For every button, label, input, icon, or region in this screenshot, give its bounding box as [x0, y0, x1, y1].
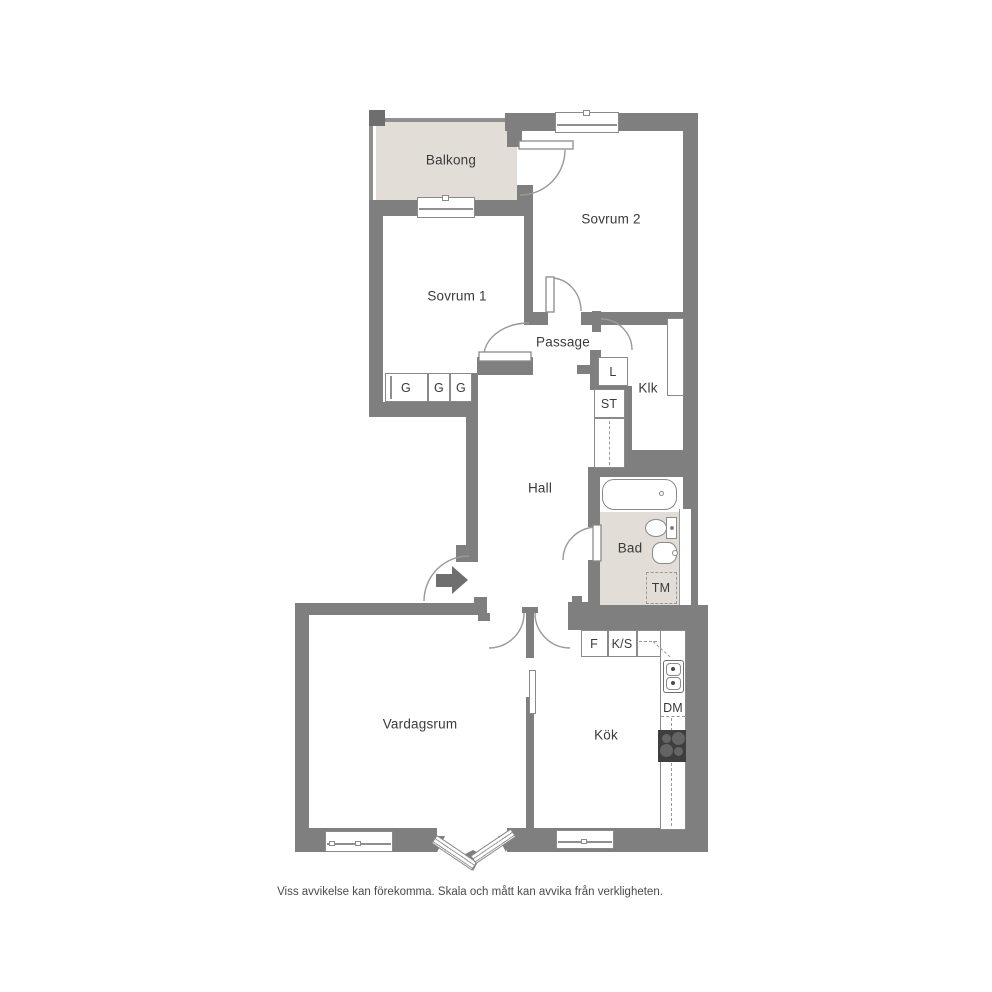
window-sovrum1-mullion — [419, 208, 473, 210]
stove-burner — [662, 734, 671, 743]
balcony-railing-top — [369, 118, 511, 122]
wall-bedroom-divider — [524, 185, 533, 325]
window-tick — [581, 839, 587, 844]
wall-st-klk-divider — [625, 386, 632, 457]
wall-livingroom-top — [295, 603, 487, 615]
wall-step — [474, 597, 487, 603]
wall-klk-left — [592, 311, 601, 332]
bathtub-drain — [659, 491, 664, 496]
room-label-sovrum2: Sovrum 2 — [581, 212, 640, 227]
wall-passage-south — [477, 357, 533, 375]
wall-kitchen-top-left — [568, 602, 600, 630]
door-swing-arc-bad — [563, 527, 597, 560]
window-sovrum2-mullion — [557, 124, 617, 126]
stove-burner — [672, 732, 685, 745]
corner-counter — [637, 630, 661, 657]
label-washing-machine: TM — [652, 581, 670, 595]
entry-arrow-head — [452, 566, 468, 594]
wall-right-kitchen — [686, 615, 708, 852]
door-leaf-sovrum2 — [546, 277, 554, 312]
label-closet-l: L — [609, 365, 616, 379]
wall-step — [478, 613, 490, 621]
door-swing-arc-sovrum2 — [551, 278, 581, 311]
wall-left-livingroom — [295, 603, 309, 852]
sink-drain-dot — [671, 681, 675, 685]
label-fridge: K/S — [612, 637, 633, 651]
door-swing-arc-kitchen — [535, 613, 570, 648]
label-freezer: F — [590, 637, 598, 651]
bathtub — [602, 479, 677, 510]
room-label-sovrum1: Sovrum 1 — [427, 289, 486, 304]
balcony-railing-left — [369, 118, 373, 203]
klk-shelf — [667, 318, 684, 396]
wall-kitchen-top — [600, 605, 708, 630]
toilet-bowl — [645, 519, 667, 537]
wall-entry-stub — [456, 545, 478, 562]
wall-sovrum2-bottom-stub — [533, 312, 548, 325]
stove-burner — [674, 747, 683, 756]
wall-balconydoor-top — [507, 131, 522, 147]
label-wardrobe-g3: G — [456, 381, 466, 395]
room-label-bad: Bad — [618, 541, 643, 556]
wall-bath-left-upper — [588, 477, 600, 527]
room-label-klk: Klk — [638, 381, 657, 396]
room-label-kok: Kök — [594, 728, 618, 743]
wall-livingroom-kitchen-divider — [526, 697, 534, 830]
room-label-balkong: Balkong — [426, 153, 476, 168]
wall-hall-left — [466, 417, 478, 562]
wall-klk-bottom — [625, 450, 698, 477]
room-label-passage: Passage — [536, 335, 590, 350]
door-leaf-balcony — [519, 141, 573, 149]
window-tick — [355, 841, 361, 846]
disclaimer-text: Viss avvikelse kan förekomma. Skala och … — [277, 886, 663, 898]
wall-left-upper — [369, 200, 383, 417]
counter-dashed-line — [661, 716, 685, 717]
label-dishwasher: DM — [663, 701, 683, 715]
balcony-pillar — [369, 110, 385, 126]
door-swing-arc-livingroom — [489, 613, 524, 648]
sink-drain-dot — [671, 667, 675, 671]
cabinet-divider-dashed — [609, 421, 610, 465]
floorplan-canvas: Balkong Sovrum 2 Sovrum 1 Passage Klk Ha… — [0, 0, 992, 992]
window-tick — [583, 110, 590, 116]
wall-step — [572, 596, 582, 602]
wall-balconydoor-bottom — [517, 185, 533, 203]
divider-panel — [529, 670, 536, 714]
wall-doublepost — [526, 607, 534, 658]
entry-arrow-shaft — [436, 574, 453, 587]
door-swing-arc-sovrum1 — [484, 323, 529, 356]
window-tick — [442, 195, 449, 201]
room-label-hall: Hall — [528, 481, 552, 496]
bath-duct-niche — [679, 509, 691, 605]
room-label-vardagsrum: Vardagsrum — [383, 717, 458, 732]
label-wardrobe-g1: G — [401, 381, 411, 395]
stove-burner — [660, 744, 673, 757]
sink-tap — [672, 550, 678, 556]
label-wardrobe-g2: G — [434, 381, 444, 395]
window-tick — [329, 841, 335, 846]
wardrobe-hinge-line — [390, 376, 392, 399]
wall-under-closets — [369, 402, 478, 417]
label-closet-st: ST — [601, 397, 617, 411]
toilet-button — [670, 526, 674, 530]
